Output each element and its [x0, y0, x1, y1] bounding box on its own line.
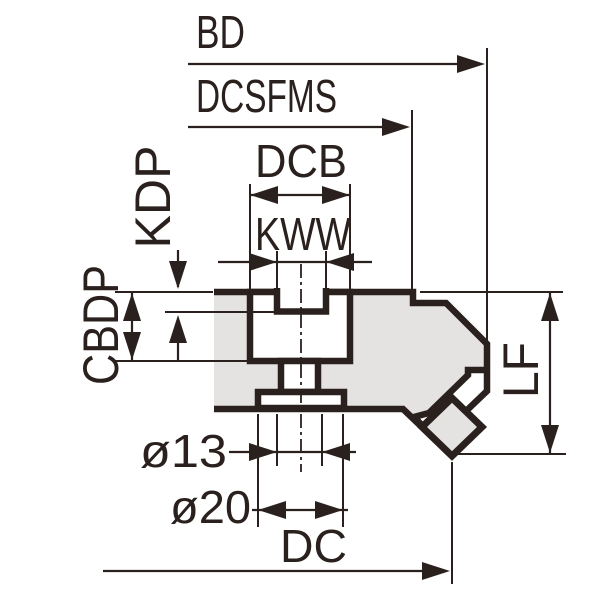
- bore-arrowhead-right: [322, 443, 350, 461]
- technical-drawing-page: BD DCSFMS DCB KWW KDP CBDP: [0, 0, 600, 600]
- dim-bd: BD: [188, 6, 485, 73]
- bore-diameter-label: ø13: [140, 425, 227, 477]
- counterbore-arrowhead-left: [258, 501, 286, 519]
- bore-arrowhead-left: [249, 443, 277, 461]
- dim-kww: KWW: [218, 208, 372, 271]
- dcb-label: DCB: [255, 135, 347, 187]
- tool-dimension-diagram: BD DCSFMS DCB KWW KDP CBDP: [0, 0, 600, 600]
- lf-arrowhead-up: [541, 293, 559, 321]
- dcsfms-label: DCSFMS: [196, 70, 337, 122]
- bd-label: BD: [196, 6, 245, 58]
- kdp-arrowhead-down: [169, 261, 187, 289]
- kdp-label: KDP: [125, 146, 181, 249]
- dc-label: DC: [280, 520, 347, 572]
- dim-dcb: DCB: [250, 135, 350, 204]
- counterbore-arrowhead-right: [315, 501, 343, 519]
- tool-body: [214, 264, 487, 472]
- bore-stem: [281, 361, 318, 392]
- dc-arrowhead: [422, 562, 450, 580]
- dim-dc: DC: [103, 520, 450, 580]
- lf-label: LF: [493, 342, 549, 398]
- bd-arrowhead: [457, 55, 485, 73]
- counterbore-diameter-label: ø20: [170, 481, 251, 533]
- dim-bore-diameter: ø13: [140, 425, 356, 477]
- lf-arrowhead-down: [541, 425, 559, 453]
- dcb-arrowhead-right: [322, 186, 350, 204]
- dcb-arrowhead-left: [250, 186, 278, 204]
- dim-lf: LF: [493, 293, 559, 453]
- dim-dcsfms: DCSFMS: [188, 70, 410, 136]
- kww-label: KWW: [255, 208, 351, 260]
- dcsfms-arrowhead: [382, 118, 410, 136]
- cbdp-label: CBDP: [73, 265, 129, 385]
- dim-kdp: KDP: [125, 146, 187, 361]
- dim-cbdp: CBDP: [73, 265, 141, 385]
